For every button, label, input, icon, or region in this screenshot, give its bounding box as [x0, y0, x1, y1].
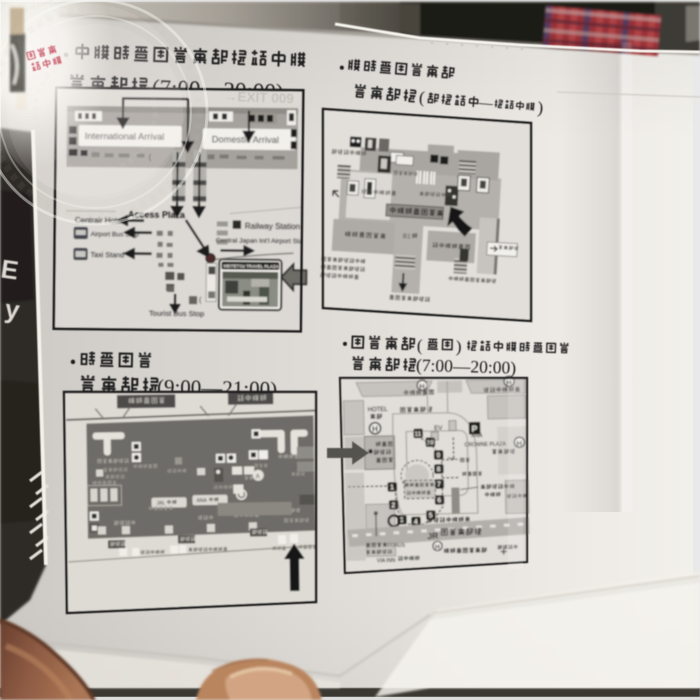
- svg-text:6: 6: [437, 498, 441, 505]
- svg-text:(: (: [417, 336, 424, 355]
- svg-text:): ): [456, 337, 462, 356]
- svg-text:HOTEL: HOTEL: [368, 407, 389, 413]
- svg-text:—: —: [477, 96, 494, 112]
- svg-text:8: 8: [437, 467, 441, 474]
- svg-text:Central Japan Int’l Airport St: Central Japan Int’l Airport Sta: [216, 237, 303, 245]
- svg-text:Tourist Bus Stop: Tourist Bus Stop: [149, 309, 204, 319]
- svg-text:JR: JR: [427, 531, 438, 542]
- svg-text:1: 1: [390, 484, 394, 491]
- svg-text:Taxi Stand: Taxi Stand: [90, 250, 124, 259]
- svg-text:Railway Station: Railway Station: [245, 222, 300, 232]
- svg-text:9: 9: [436, 453, 440, 460]
- svg-text:MEITETSU TRAVEL PLAZA: MEITETSU TRAVEL PLAZA: [223, 263, 278, 269]
- svg-text:H: H: [435, 544, 440, 551]
- svg-text:CROWNE PLAZA: CROWNE PLAZA: [464, 442, 506, 449]
- svg-text:FORUS: FORUS: [387, 543, 405, 549]
- svg-text:VIA INN: VIA INN: [377, 558, 396, 564]
- svg-text:H: H: [419, 382, 425, 391]
- svg-text:JAL: JAL: [157, 501, 166, 507]
- svg-text:B1: B1: [402, 233, 411, 240]
- svg-text:H: H: [372, 425, 378, 434]
- svg-text:ANA: ANA: [196, 498, 207, 504]
- svg-text:ANA: ANA: [471, 433, 483, 439]
- svg-text:(7:00—20:00): (7:00—20:00): [416, 355, 517, 378]
- svg-text:7: 7: [437, 482, 441, 489]
- svg-text:A: A: [256, 474, 260, 480]
- svg-text:→EXIT 009: →EXIT 009: [224, 89, 294, 106]
- svg-text:11: 11: [415, 431, 422, 438]
- svg-text:10: 10: [427, 440, 435, 447]
- svg-text:EV: EV: [434, 425, 443, 432]
- svg-text:2: 2: [391, 502, 395, 509]
